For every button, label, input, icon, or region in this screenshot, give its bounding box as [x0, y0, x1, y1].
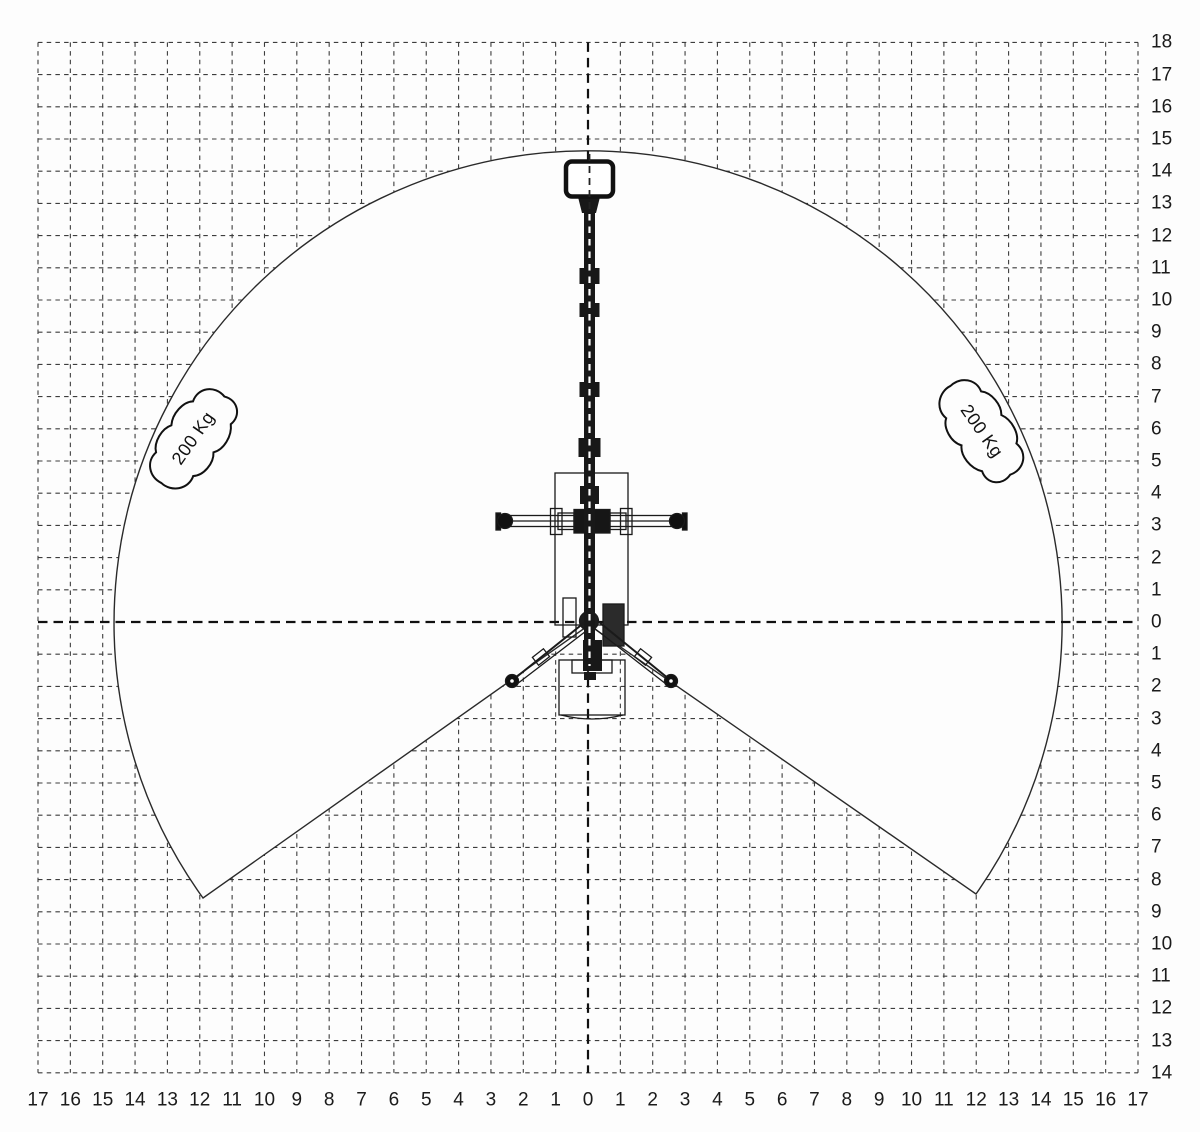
x-axis-tick-label: 9: [292, 1091, 303, 1110]
y-axis-tick-label: 14: [1151, 162, 1172, 181]
x-axis-tick-label: 3: [486, 1091, 497, 1110]
y-axis-tick-label: 11: [1151, 967, 1171, 986]
rear-pad-left-center: [510, 679, 514, 683]
x-axis-tick-label: 10: [254, 1091, 275, 1110]
y-axis-tick-label: 16: [1151, 97, 1172, 116]
y-axis-tick-label: 15: [1151, 130, 1172, 149]
x-axis-tick-label: 7: [809, 1091, 820, 1110]
x-axis-tick-label: 11: [934, 1091, 954, 1110]
y-axis-tick-label: 8: [1151, 355, 1162, 374]
x-axis-tick-label: 3: [680, 1091, 691, 1110]
x-axis-tick-label: 12: [189, 1091, 210, 1110]
x-axis-tick-label: 1: [615, 1091, 626, 1110]
x-axis-tick-label: 2: [647, 1091, 658, 1110]
y-axis-tick-label: 6: [1151, 806, 1162, 825]
y-axis-tick-label: 0: [1151, 613, 1162, 632]
x-axis-tick-label: 15: [92, 1091, 113, 1110]
x-axis-tick-label: 0: [583, 1091, 594, 1110]
x-axis-tick-label: 6: [777, 1091, 788, 1110]
x-axis-tick-label: 2: [518, 1091, 529, 1110]
y-axis-tick-label: 17: [1151, 65, 1172, 84]
x-axis-tick-label: 7: [356, 1091, 367, 1110]
y-axis-tick-label: 9: [1151, 902, 1162, 921]
y-axis-tick-label: 4: [1151, 741, 1162, 760]
x-axis-tick-label: 17: [27, 1091, 48, 1110]
x-axis-tick-label: 4: [712, 1091, 723, 1110]
x-axis-tick-label: 8: [324, 1091, 335, 1110]
y-axis-tick-label: 1: [1151, 580, 1162, 599]
outrigger-pad-left: [498, 514, 513, 529]
y-axis-tick-label: 5: [1151, 774, 1162, 793]
x-axis-tick-label: 16: [1095, 1091, 1116, 1110]
x-axis-tick-label: 5: [421, 1091, 432, 1110]
y-axis-tick-label: 13: [1151, 194, 1172, 213]
foot-tongue: [584, 672, 596, 680]
x-axis-tick-label: 5: [744, 1091, 755, 1110]
y-axis-tick-label: 13: [1151, 1031, 1172, 1050]
y-axis-tick-label: 10: [1151, 291, 1172, 310]
y-axis-tick-label: 7: [1151, 838, 1162, 857]
x-axis-tick-label: 9: [874, 1091, 885, 1110]
x-axis-tick-label: 8: [842, 1091, 853, 1110]
y-axis-tick-label: 4: [1151, 484, 1162, 503]
x-axis-tick-label: 14: [124, 1091, 145, 1110]
outrigger-pad-right: [670, 514, 685, 529]
y-axis-tick-label: 14: [1151, 1063, 1172, 1082]
y-axis-tick-label: 5: [1151, 452, 1162, 471]
working-range-diagram: 200 Kg 200 Kg 17161514131211109876543210…: [0, 0, 1200, 1132]
y-axis-tick-label: 9: [1151, 323, 1162, 342]
mast-foot: [583, 640, 602, 671]
y-axis-tick-label: 2: [1151, 548, 1162, 567]
y-axis-tick-label: 1: [1151, 645, 1162, 664]
y-axis-tick-label: 12: [1151, 226, 1172, 245]
x-axis-tick-label: 16: [60, 1091, 81, 1110]
x-axis-tick-label: 11: [222, 1091, 242, 1110]
x-axis-tick-label: 6: [389, 1091, 400, 1110]
x-axis-tick-label: 13: [998, 1091, 1019, 1110]
diagram-canvas: 200 Kg 200 Kg: [0, 0, 1200, 1132]
y-axis-tick-label: 6: [1151, 419, 1162, 438]
y-axis-tick-label: 3: [1151, 516, 1162, 535]
y-axis-tick-label: 2: [1151, 677, 1162, 696]
x-axis-tick-label: 1: [550, 1091, 561, 1110]
x-axis-tick-label: 10: [901, 1091, 922, 1110]
x-axis-tick-label: 13: [157, 1091, 178, 1110]
x-axis-tick-label: 4: [453, 1091, 464, 1110]
y-axis-tick-label: 3: [1151, 709, 1162, 728]
x-axis-tick-label: 12: [966, 1091, 987, 1110]
x-axis-tick-label: 15: [1063, 1091, 1084, 1110]
y-axis-tick-label: 8: [1151, 870, 1162, 889]
x-axis-tick-label: 17: [1127, 1091, 1148, 1110]
y-axis-tick-label: 12: [1151, 999, 1172, 1018]
y-axis-tick-label: 11: [1151, 258, 1171, 277]
x-axis-tick-label: 14: [1030, 1091, 1051, 1110]
y-axis-tick-label: 10: [1151, 935, 1172, 954]
y-axis-tick-label: 7: [1151, 387, 1162, 406]
rear-pad-right-center: [669, 679, 673, 683]
y-axis-tick-label: 18: [1151, 33, 1172, 52]
